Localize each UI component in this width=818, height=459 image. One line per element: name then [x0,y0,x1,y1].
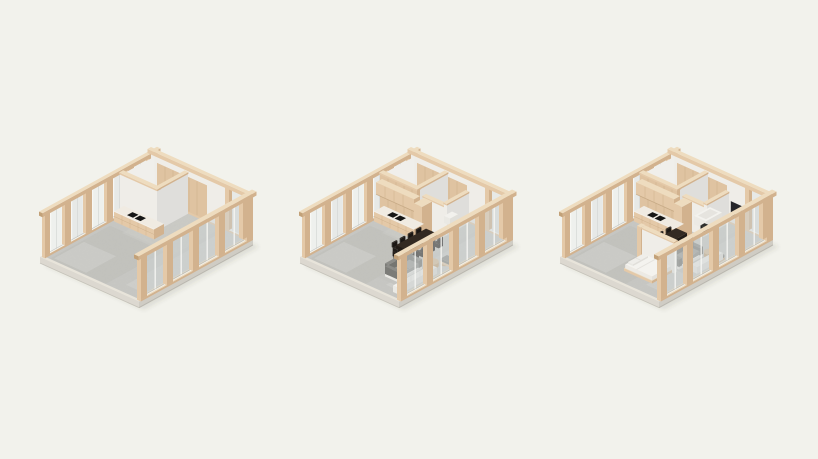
isometric-room-1 [34,145,264,315]
isometric-room-2 [294,145,524,315]
isometric-room-3 [554,145,784,315]
room-1-svg [34,145,264,315]
room-2-svg [294,145,524,315]
architectural-render-canvas [0,0,818,459]
room-3-svg [554,145,784,315]
